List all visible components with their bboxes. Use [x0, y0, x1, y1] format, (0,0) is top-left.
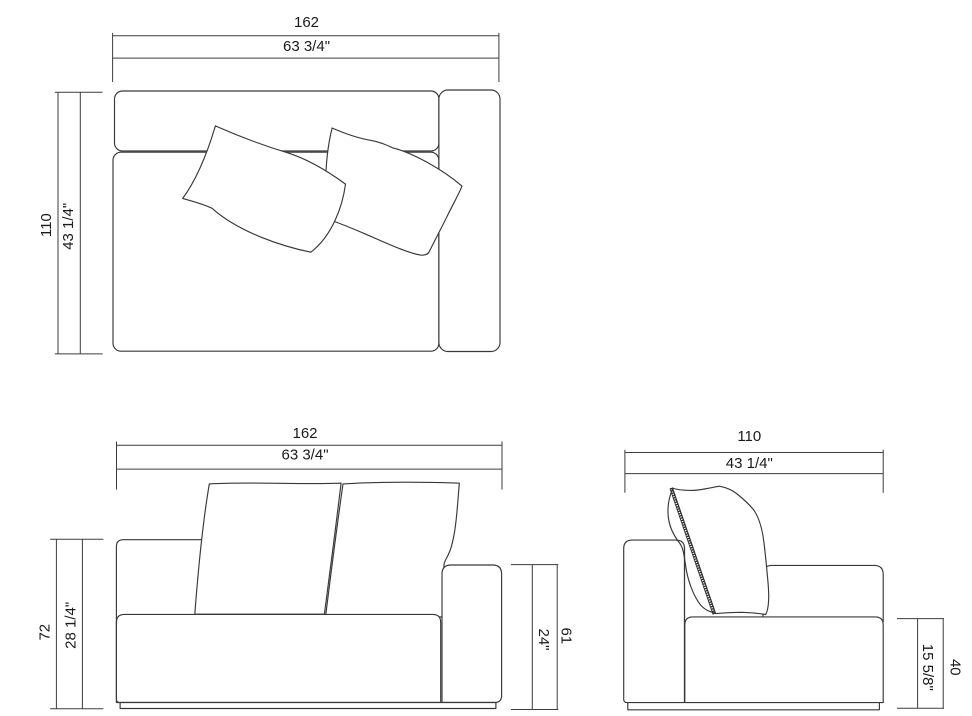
svg-text:24": 24": [535, 628, 552, 650]
svg-text:72: 72: [37, 624, 54, 641]
svg-text:40: 40: [946, 659, 963, 676]
svg-text:110: 110: [737, 428, 761, 445]
svg-text:162: 162: [294, 14, 319, 31]
svg-text:43 1/4": 43 1/4": [60, 203, 77, 250]
svg-text:61: 61: [558, 627, 575, 644]
svg-text:28 1/4": 28 1/4": [63, 602, 80, 649]
svg-text:15 5/8": 15 5/8": [919, 644, 936, 691]
svg-text:63 3/4": 63 3/4": [281, 447, 328, 464]
svg-text:110: 110: [38, 213, 55, 237]
svg-text:162: 162: [292, 425, 317, 442]
svg-text:43 1/4": 43 1/4": [726, 455, 773, 472]
svg-text:63 3/4": 63 3/4": [283, 38, 330, 55]
